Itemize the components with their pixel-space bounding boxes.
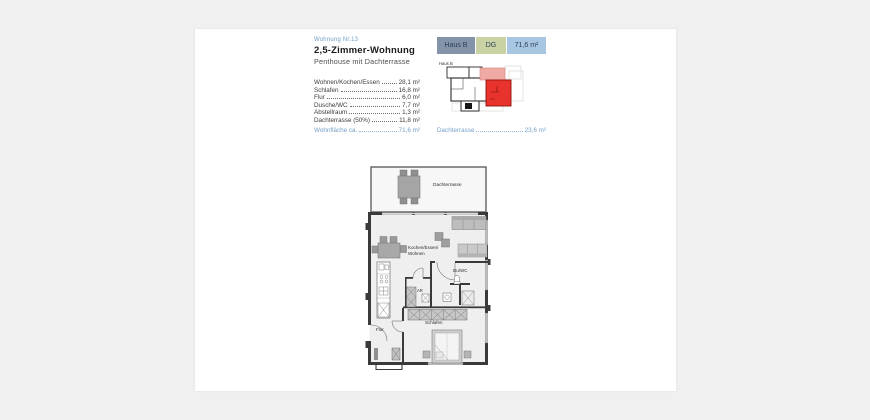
sofa — [452, 217, 486, 230]
dotted-leader — [359, 131, 396, 132]
room-value: 6,0 m² — [402, 94, 420, 102]
dotted-leader — [476, 131, 522, 132]
floorplan-drawing: Dachterrasse Kochen/Essen/ Wohnen Du/WC … — [364, 165, 491, 371]
bath-room-label: Du/WC — [453, 268, 468, 273]
storage-room-label: AR — [417, 288, 423, 293]
second-sofa — [458, 244, 487, 257]
room-row: Dachterrasse (50%) 11,8 m² — [314, 117, 420, 125]
header-block: Wohnung Nr.13 2,5-Zimmer-Wohnung Penthou… — [314, 37, 415, 66]
dotted-leader — [382, 83, 397, 84]
room-list: Wohnen/Kochen/Essen 28,1 m² Schlafen 16,… — [314, 79, 420, 135]
badge-floor: DG — [476, 37, 506, 54]
room-row: Flur 6,0 m² — [314, 94, 420, 102]
room-row: Dusche/WC 7,7 m² — [314, 102, 420, 110]
entry-porch-outline — [376, 365, 402, 370]
minimap-terrace-highlight — [480, 68, 505, 80]
room-value: 28,1 m² — [399, 79, 420, 87]
room-label: Abstellraum — [314, 109, 347, 117]
room-value: 16,8 m² — [399, 87, 420, 95]
total-area-row: Wohnfläche ca. 71,6 m² — [314, 127, 420, 135]
badge-haus: Haus B — [437, 37, 475, 54]
dotted-leader — [327, 98, 400, 99]
living-room-label-1: Kochen/Essen/ — [408, 245, 439, 250]
floorplan: Dachterrasse Kochen/Essen/ Wohnen Du/WC … — [364, 165, 491, 371]
terrace-value: 23,6 m² — [525, 127, 546, 135]
site-minimap: Haus B — [435, 59, 527, 115]
dotted-leader — [350, 106, 401, 107]
badge-area: 71,6 m² — [507, 37, 546, 54]
minimap-label: Haus B — [439, 61, 453, 66]
total-label: Wohnfläche ca. — [314, 127, 357, 135]
hall-label: Flur — [376, 327, 384, 332]
dotted-leader — [349, 113, 400, 114]
minimap-unit-highlight — [486, 80, 511, 106]
unit-number: Wohnung Nr.13 — [314, 37, 415, 43]
bed — [432, 330, 462, 363]
room-value: 7,7 m² — [402, 102, 420, 110]
bedroom-label: Schlafen — [425, 320, 443, 325]
minimap-drawing: Haus B — [435, 59, 527, 115]
living-room-label-2: Wohnen — [408, 251, 425, 256]
room-row: Schlafen 16,8 m² — [314, 87, 420, 95]
terrace-room-label: Dachterrasse — [433, 182, 462, 188]
room-value: 11,8 m² — [399, 117, 420, 125]
room-value: 1,3 m² — [402, 109, 420, 117]
subtitle: Penthouse mit Dachterrasse — [314, 57, 415, 66]
dotted-leader — [341, 91, 397, 92]
total-value: 71,6 m² — [399, 127, 420, 135]
room-row: Wohnen/Kochen/Essen 28,1 m² — [314, 79, 420, 87]
badge-row: Haus B DG 71,6 m² — [437, 37, 546, 54]
terrace-area-row: Dachterrasse 23,6 m² — [437, 127, 546, 135]
terrace-label: Dachterrasse — [437, 127, 474, 135]
wardrobe-row — [408, 310, 467, 321]
minimap-stairwell — [465, 103, 472, 109]
room-row: Abstellraum 1,3 m² — [314, 109, 420, 117]
terrace-outline — [371, 167, 486, 212]
room-label: Dachterrasse (50%) — [314, 117, 370, 125]
kitchen-counter — [377, 262, 390, 318]
room-label: Schlafen — [314, 87, 339, 95]
dotted-leader — [372, 121, 397, 122]
room-label: Flur — [314, 94, 325, 102]
page-title: 2,5-Zimmer-Wohnung — [314, 45, 415, 56]
room-label: Dusche/WC — [314, 102, 348, 110]
room-label: Wohnen/Kochen/Essen — [314, 79, 380, 87]
document-sheet: Wohnung Nr.13 2,5-Zimmer-Wohnung Penthou… — [195, 29, 676, 391]
